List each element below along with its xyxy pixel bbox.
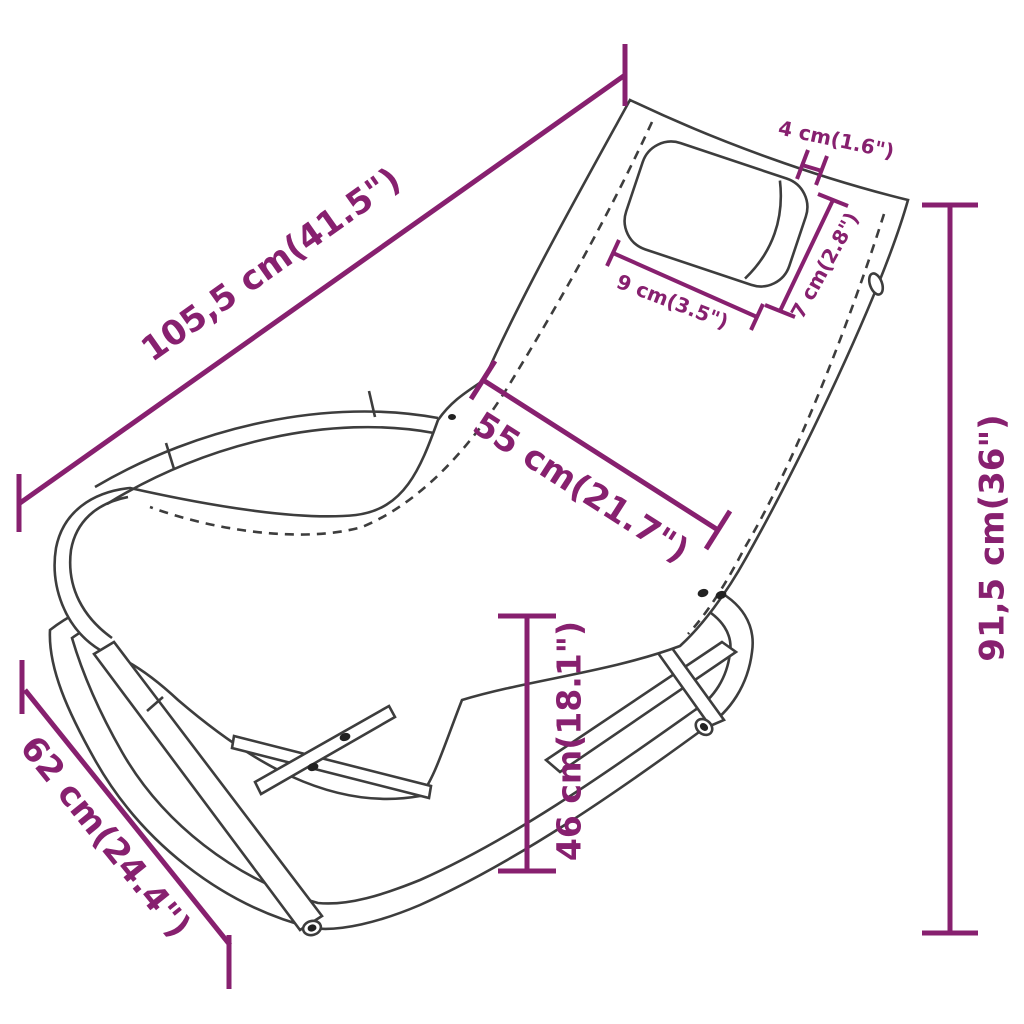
armrest-joint-tick-2 xyxy=(369,391,375,417)
label-total-length: 105,5 cm(41.5") xyxy=(134,160,408,370)
lounger-drawing xyxy=(50,100,908,937)
label-total-height: 91,5 cm(36") xyxy=(973,414,1013,661)
armrest-joint-tick-1 xyxy=(166,443,174,469)
rivet-icon xyxy=(448,414,456,420)
diagram-canvas: 105,5 cm(41.5") 55 cm(21.7") 91,5 cm(36"… xyxy=(0,0,1024,1024)
dimension-diagram: 105,5 cm(41.5") 55 cm(21.7") 91,5 cm(36"… xyxy=(0,0,1024,1024)
label-seat-height: 46 cm(18.1") xyxy=(550,621,589,861)
armrest-tube-outer xyxy=(95,411,438,487)
dim-total-height xyxy=(922,205,978,933)
label-pillow-thickness: 4 cm(1.6") xyxy=(776,116,896,164)
